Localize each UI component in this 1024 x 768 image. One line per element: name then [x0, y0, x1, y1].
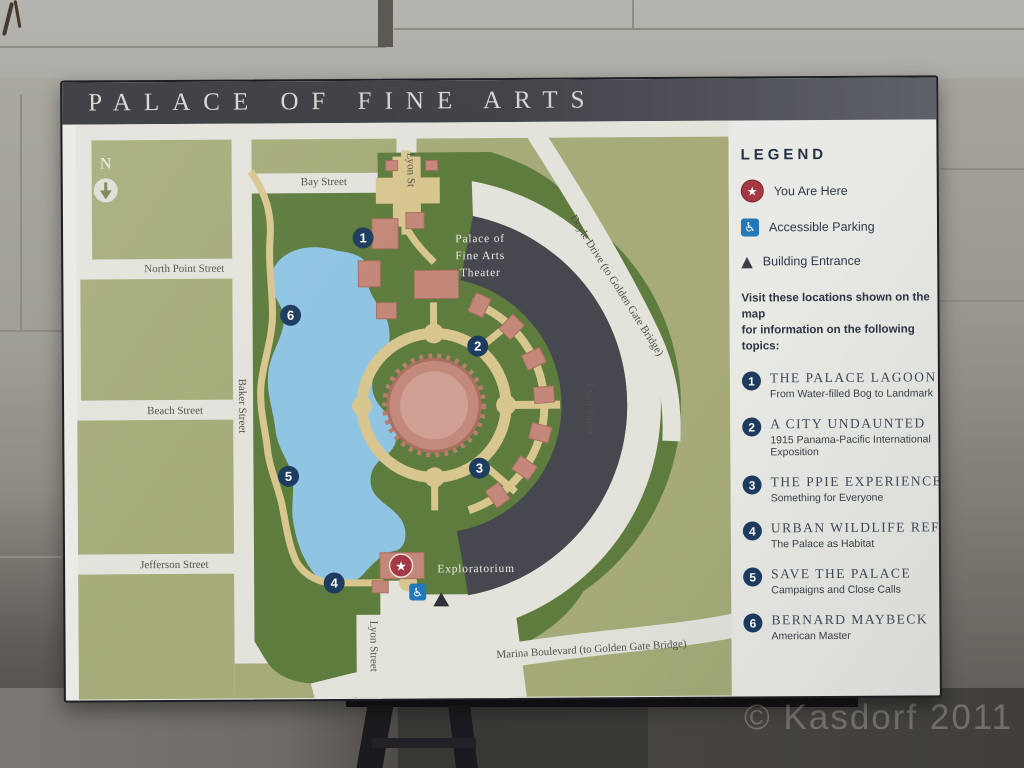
street-label-jefferson: Jefferson Street — [140, 559, 209, 571]
sign-stand-crossbar — [372, 738, 476, 748]
legend-item-you-are-here: ★ You Are Here — [741, 178, 931, 202]
legend-item-label: Building Entrance — [763, 254, 861, 269]
legend-item-building-entrance: ▲ Building Entrance — [741, 251, 931, 270]
topic-item-3: 3 THE PPIE EXPERIENCE Something for Ever… — [743, 474, 933, 505]
svg-text:5: 5 — [285, 469, 292, 484]
topic-subtitle: From Water-filled Bog to Landmark — [770, 388, 937, 401]
topic-item-1: 1 THE PALACE LAGOON From Water-filled Bo… — [742, 370, 932, 401]
you-are-here-star-icon: ★ — [741, 179, 764, 202]
topic-subtitle: The Palace as Habitat — [771, 537, 942, 550]
legend-item-label: You Are Here — [774, 183, 848, 197]
svg-text:♿: ♿ — [412, 585, 423, 599]
street-label-bay: Bay Street — [301, 176, 347, 188]
legend-heading: LEGEND — [741, 145, 931, 163]
street-label-beach: Beach Street — [147, 405, 203, 417]
svg-text:Theater: Theater — [460, 267, 501, 279]
topic-title: THE PALACE LAGOON — [770, 370, 937, 387]
legend-item-label: Accessible Parking — [769, 220, 875, 235]
topic-item-4: 4 URBAN WILDLIFE REFUGE The Palace as Ha… — [743, 520, 933, 551]
topic-number: 4 — [743, 522, 762, 541]
topic-subtitle: American Master — [771, 630, 928, 643]
map-marker-2: 2 — [467, 336, 488, 357]
sign-title-bar: PALACE OF FINE ARTS — [62, 77, 936, 124]
pavement-joint — [0, 330, 62, 332]
legend-item-accessible-parking: ♿ Accessible Parking — [741, 217, 931, 236]
pavement-joint — [0, 46, 386, 48]
map-svg: Bay Street Lyon St North Point Street Be… — [75, 121, 732, 700]
pavement-right — [938, 78, 1024, 768]
map-marker-3: 3 — [469, 458, 490, 479]
map-marker-5: 5 — [278, 466, 299, 487]
pavement-gap — [378, 0, 393, 47]
topic-item-6: 6 BERNARD MAYBECK American Master — [743, 612, 933, 643]
exploratorium-label: Exploratorium — [437, 563, 515, 575]
map-area: Bay Street Lyon St North Point Street Be… — [75, 121, 732, 700]
sidewalk-left — [0, 78, 64, 768]
topic-title: BERNARD MAYBECK — [771, 612, 928, 629]
svg-text:2: 2 — [474, 339, 481, 354]
svg-text:6: 6 — [287, 308, 294, 323]
topic-title: A CITY UNDAUNTED — [770, 416, 932, 433]
map-marker-4: 4 — [324, 572, 345, 593]
topic-item-5: 5 SAVE THE PALACE Campaigns and Close Ca… — [743, 566, 933, 597]
accessible-parking-icon: ♿ — [409, 583, 426, 600]
photo-watermark: © Kasdorf 2011 — [744, 698, 1024, 738]
topic-subtitle: Something for Everyone — [771, 492, 942, 505]
topic-number: 1 — [742, 372, 761, 391]
street-label-lyon-mid: Lyon Street — [584, 383, 596, 434]
legend-intro: Visit these locations shown on the map f… — [741, 289, 931, 355]
topic-number: 3 — [743, 476, 762, 495]
topic-title: SAVE THE PALACE — [771, 566, 911, 583]
topic-number: 6 — [743, 614, 762, 633]
svg-text:Fine Arts: Fine Arts — [455, 250, 505, 262]
topic-subtitle: Campaigns and Close Calls — [771, 584, 911, 597]
topic-title: THE PPIE EXPERIENCE — [771, 474, 942, 491]
pavement-joint — [632, 0, 634, 29]
legend-panel: LEGEND ★ You Are Here ♿ Accessible Parki… — [728, 119, 942, 695]
wheelchair-icon: ♿ — [741, 218, 759, 236]
north-label: N — [100, 155, 112, 172]
map-marker-6: 6 — [280, 305, 301, 326]
svg-text:★: ★ — [395, 560, 407, 575]
pavement-joint — [940, 168, 1024, 170]
topic-number: 2 — [742, 418, 761, 437]
street-label-north-point: North Point Street — [144, 263, 224, 275]
sign-title: PALACE OF FINE ARTS — [62, 86, 597, 117]
street-label-baker: Baker Street — [236, 379, 248, 434]
svg-text:4: 4 — [331, 575, 339, 590]
theater-label: Palace of Fine Arts Theater — [455, 233, 505, 279]
topic-number: 5 — [743, 568, 762, 587]
map-marker-1: 1 — [353, 227, 374, 248]
pavement-joint — [0, 556, 62, 558]
svg-text:1: 1 — [359, 230, 366, 245]
entrance-triangle-icon: ▲ — [741, 252, 753, 270]
sidewalk-top — [0, 0, 1024, 80]
you-are-here-marker: ★ — [390, 554, 413, 577]
sign-shadow — [398, 698, 648, 768]
street-label-lyon-top: Lyon St — [405, 153, 417, 188]
pavement-joint — [940, 300, 1024, 302]
topic-item-2: 2 A CITY UNDAUNTED 1915 Panama-Pacific I… — [742, 416, 932, 459]
pavement-joint — [394, 28, 1024, 30]
street-label-lyon-bottom: Lyon Street — [367, 621, 379, 672]
park-map-sign: PALACE OF FINE ARTS — [60, 75, 942, 702]
topic-subtitle: 1915 Panama-Pacific International Exposi… — [770, 434, 932, 459]
pavement-joint — [20, 95, 22, 330]
svg-text:Palace of: Palace of — [455, 233, 505, 245]
topic-title: URBAN WILDLIFE REFUGE — [771, 519, 942, 536]
svg-text:3: 3 — [476, 461, 483, 476]
